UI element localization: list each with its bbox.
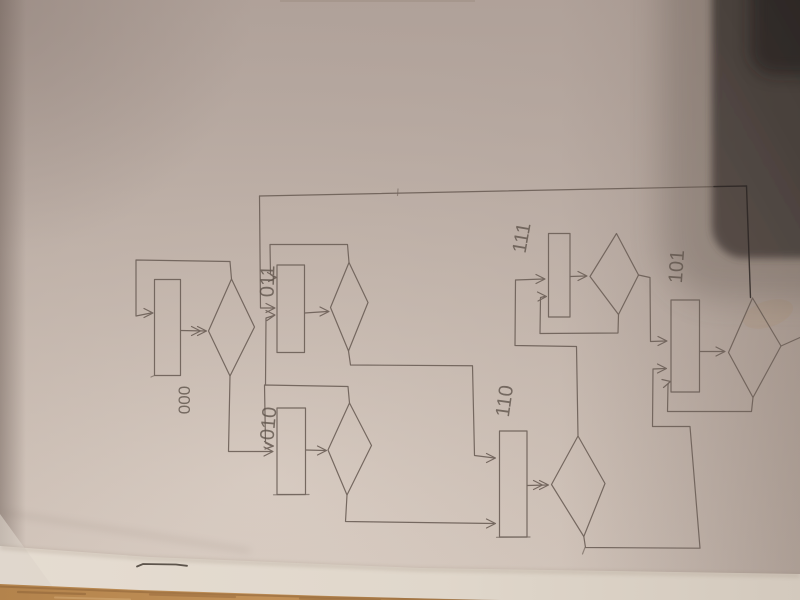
svg-text:110: 110 <box>492 384 518 419</box>
svg-text:010: 010 <box>257 406 282 441</box>
svg-text:000: 000 <box>175 386 194 414</box>
svg-text:011: 011 <box>256 265 279 298</box>
